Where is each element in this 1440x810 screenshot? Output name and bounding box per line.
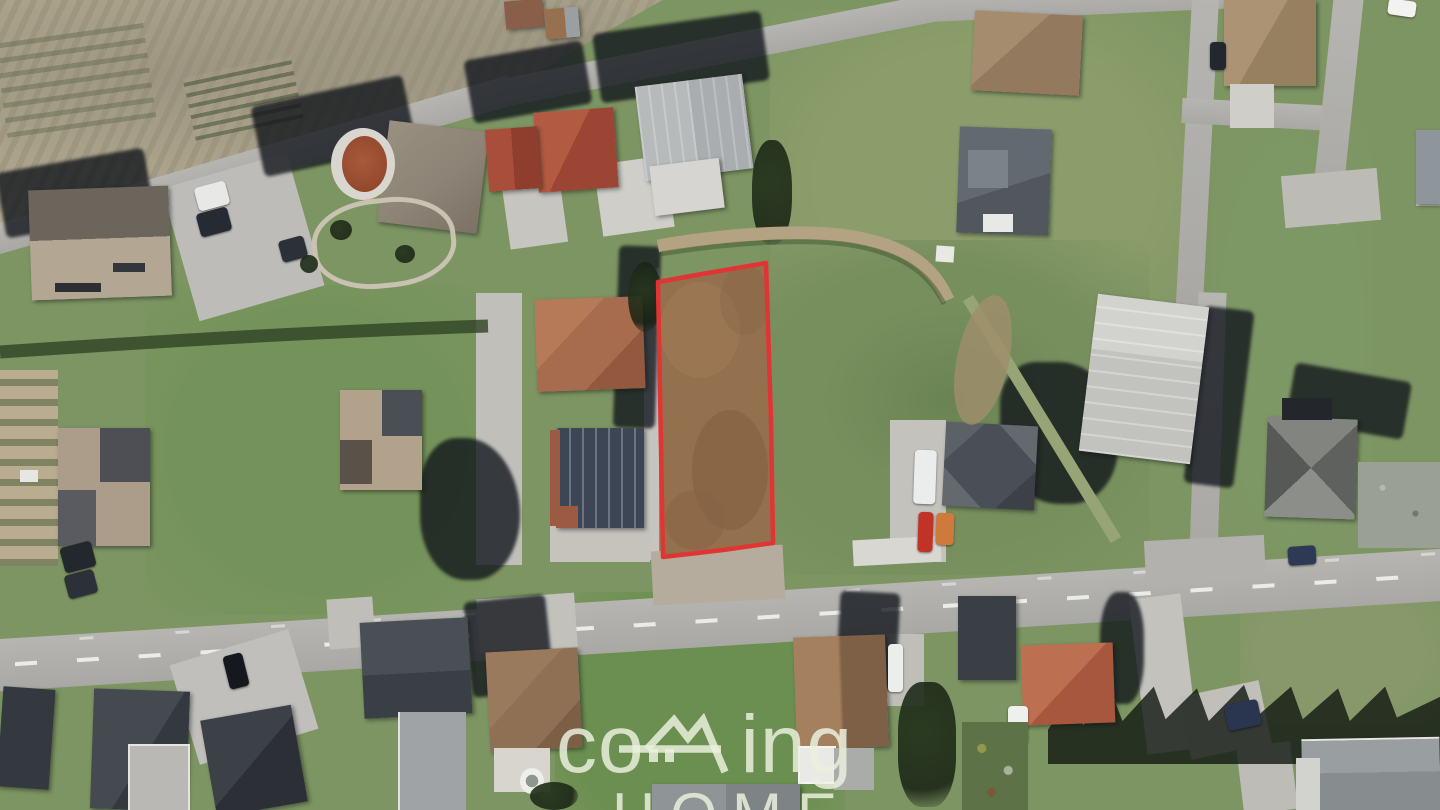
solar-house-tile-notch	[556, 506, 578, 528]
hedge-row-mid-left	[0, 326, 488, 352]
cross-gable-dark-wing	[100, 428, 150, 482]
garden-bush-2	[395, 245, 415, 263]
paving-top-right	[1281, 168, 1381, 228]
aerial-photo: co ing HOME	[0, 0, 1440, 810]
shed-2	[544, 7, 580, 40]
shed-1	[504, 0, 544, 30]
house-topright-1	[971, 10, 1083, 96]
white-shed-gray-flat	[983, 214, 1013, 232]
house-28-orange	[1021, 642, 1116, 725]
house-mid-dark-section	[382, 390, 422, 436]
dark-car-house10-b	[63, 569, 98, 600]
orange-container	[935, 513, 954, 546]
house-31-gray-hip	[1301, 737, 1440, 810]
house-31-wall	[1296, 758, 1320, 810]
dark-car-vertical-road	[1210, 42, 1226, 70]
dirt-path-creek	[658, 233, 948, 300]
house-topleft-window	[55, 283, 101, 292]
watermark-line2: HOME	[612, 780, 852, 810]
allotment-gardens	[0, 370, 58, 566]
garden-bush-1	[330, 220, 352, 240]
gravel-south-of-parcel	[651, 545, 786, 606]
pyramid-roof-house	[1264, 416, 1357, 519]
house-roof-key-m-icon	[619, 708, 737, 772]
garage-bl-2	[128, 744, 190, 810]
watermark-suffix: ing	[741, 698, 853, 792]
tree-parcel-corner	[628, 262, 662, 332]
cross-gable-dark-wing2	[58, 490, 96, 546]
white-car-27	[888, 644, 903, 692]
parcel-dirt-ground	[658, 263, 773, 557]
house-right-edge-partial	[1416, 130, 1440, 204]
house-mid-dark-section2	[340, 440, 372, 484]
garden-path-loop	[308, 191, 461, 296]
shrubs-27	[898, 682, 956, 807]
barn-metal-roof	[1079, 294, 1209, 464]
courtyard-solar-house	[550, 526, 650, 562]
house-topleft-window2	[113, 263, 145, 272]
patio-top-corner	[1230, 84, 1274, 128]
parcel-red-outline	[658, 263, 773, 557]
blue-car-main-road	[1287, 545, 1316, 566]
house-bl-4-flat-section	[398, 712, 466, 810]
construction-house	[942, 422, 1038, 511]
trees-east-of-industrial	[752, 140, 792, 245]
round-pool-cover	[342, 136, 387, 192]
house-bl-4	[360, 617, 473, 719]
industrial-annex	[649, 158, 725, 216]
stone-wall-rubble	[1358, 462, 1440, 548]
site-trailer	[913, 450, 937, 505]
house-bl-1	[0, 686, 55, 789]
white-van-top-right	[1387, 0, 1417, 18]
red-truck	[917, 512, 933, 552]
house-28-dark	[958, 596, 1016, 680]
terrace-rows	[0, 18, 156, 138]
cold-frame	[20, 470, 38, 482]
red-roof-wing	[485, 126, 541, 191]
house-bl-3	[200, 705, 308, 810]
cluttered-garden	[962, 722, 1028, 810]
highlighted-parcel	[658, 263, 773, 557]
gray-flat-skylight	[968, 150, 1008, 188]
creek-shade	[660, 242, 944, 304]
house-top-corner	[1224, 0, 1316, 86]
watermark-brand: co ing	[556, 698, 853, 792]
white-hut-field	[935, 245, 954, 262]
garage-dark-north	[1282, 398, 1332, 420]
red-roof-house	[533, 107, 618, 192]
junction-patch	[1144, 535, 1266, 585]
